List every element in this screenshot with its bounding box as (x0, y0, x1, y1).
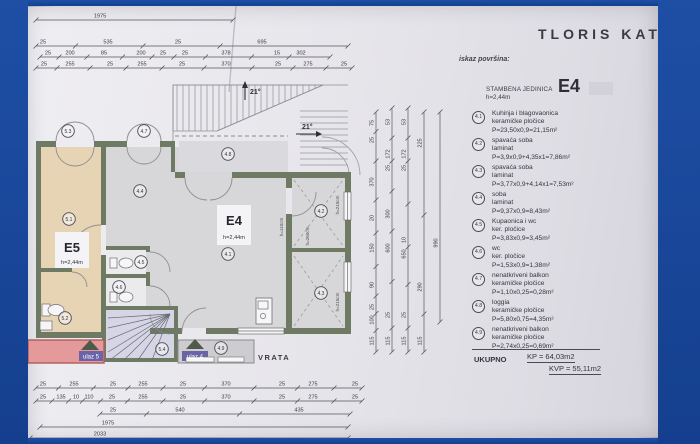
toilet-icon (119, 292, 133, 302)
dim-label: 300 (386, 209, 392, 218)
room-marker-label: 4.5 (138, 260, 145, 266)
dim-label: 25 (110, 408, 116, 414)
photo-frame-left (0, 0, 28, 444)
legend-item-text: spavaća sobalaminatP=3,77x0,9+4,14x1=7,5… (492, 164, 574, 189)
dim-label: 25 (352, 395, 358, 401)
room-code-circle: 4.7 (472, 273, 485, 286)
dim-label: 302 (296, 51, 305, 57)
dim-label: 650 (402, 249, 408, 258)
dim-label: 115 (402, 337, 408, 346)
dim-label: 275 (308, 395, 317, 401)
dim-label: 172 (386, 149, 392, 158)
room-marker-label: 5.3 (65, 129, 72, 135)
entrance-label-ulaz5: ulaz 5 (83, 355, 100, 361)
legend-unit-label: STAMBENA JEDINICA (486, 86, 553, 93)
ceiling-height-label: h=215cm (335, 195, 340, 214)
dim-label: 10 (402, 237, 408, 243)
dim-label: 85 (101, 51, 107, 57)
dim-label: 370 (221, 62, 230, 68)
dim-label: 435 (294, 408, 303, 414)
dim-label: 25 (182, 51, 188, 57)
dim-label: 200 (136, 51, 145, 57)
legend-item-text: wcker. pločiceP=1,53x0,9=1,38m² (492, 245, 550, 270)
room-marker-label: 4.2 (318, 209, 325, 215)
totals-kvp-value: KVP = 55,11m2 (549, 364, 601, 375)
legend-heading: iskaz površina: (459, 56, 510, 63)
dim-label: 695 (257, 40, 266, 46)
ceiling-height-label: h=110cm (279, 217, 284, 236)
room-marker-label: 5.1 (66, 217, 73, 223)
ceiling-height-label: h=260cm (305, 226, 310, 245)
dim-label: 10 (73, 395, 79, 401)
dim-label: 25 (40, 395, 46, 401)
dim-label: 25 (370, 137, 376, 143)
dim-label: 25 (279, 395, 285, 401)
dim-label: 25 (180, 382, 186, 388)
dim-label: 378 (221, 51, 230, 57)
legend-item-text: loggiakeramičke pločiceP=5,80x0,75=4,35m… (492, 299, 554, 324)
room-code-circle: 4.4 (472, 192, 485, 205)
page-title: TLORIS KATA (538, 26, 674, 42)
unit-e5-height: h=2,44m (61, 260, 83, 266)
dim-label: 25 (402, 165, 408, 171)
room-code-circle: 4.3 (472, 165, 485, 178)
dim-label: 25 (40, 382, 46, 388)
room-marker-label: 4.1 (225, 252, 232, 258)
unit-e4-height: h=2,44m (223, 235, 245, 241)
room-code-circle: 4.1 (472, 111, 485, 124)
legend-unit-swatch (589, 82, 613, 95)
room-marker-label: 4.7 (141, 129, 148, 135)
totals-divider (472, 349, 600, 350)
dim-label: 25 (402, 312, 408, 318)
room-marker-label: 4.6 (116, 285, 123, 291)
dim-label: 25 (40, 40, 46, 46)
photo-frame-right (658, 0, 700, 444)
dim-label: 135 (56, 395, 65, 401)
room-code-circle: 4.5 (472, 219, 485, 232)
dim-label: 25 (109, 395, 115, 401)
dim-label: 255 (69, 382, 78, 388)
totals-kp-value: KP = 64,03m2 (527, 352, 575, 363)
dim-label: 290 (418, 282, 424, 291)
legend-item-text: sobalaminatP=9,37x0,9=8,43m² (492, 191, 550, 216)
dim-label: 115 (386, 337, 392, 346)
roof-slope-angle-up: 21° (250, 88, 261, 96)
dim-label: 370 (221, 382, 230, 388)
dim-label: 255 (138, 382, 147, 388)
dim-label: 600 (386, 243, 392, 252)
dim-label: 90 (370, 282, 376, 288)
legend-unit-code: E4 (558, 76, 580, 97)
dim-label: 75 (370, 120, 376, 126)
roof-slope-angle-right: 21° (302, 123, 313, 131)
legend-items-list: 4.1Kuhinja i blagovaonicakeramičke ploči… (472, 110, 657, 350)
dim-label: 115 (370, 337, 376, 346)
dim-label: 275 (308, 382, 317, 388)
dim-label: 540 (175, 408, 184, 414)
dim-label: 172 (402, 149, 408, 158)
legend-item-text: Kuhinja i blagovaonicakeramičke pločiceP… (492, 110, 558, 135)
dim-label: 370 (221, 395, 230, 401)
dim-label: 25 (352, 382, 358, 388)
dim-label: 53 (402, 119, 408, 125)
room-marker-label: 4.3 (318, 291, 325, 297)
dim-label: 25 (180, 395, 186, 401)
dim-label: 25 (275, 62, 281, 68)
room-marker-label: 4.9 (218, 346, 225, 352)
dim-label: 25 (341, 62, 347, 68)
legend-item-text: spavaća sobalaminatP=3,9x0,9+4,35x1=7,86… (492, 137, 570, 162)
room-marker-label: 5.2 (62, 316, 69, 322)
room-marker-label: 4.4 (137, 189, 144, 195)
dim-label: 255 (138, 395, 147, 401)
dim-label: 25 (179, 62, 185, 68)
dim-label: 25 (45, 51, 51, 57)
room-code-circle: 4.2 (472, 138, 485, 151)
dim-label: 25 (160, 51, 166, 57)
legend-item-text: nenatkriveni balkonkeramičke pločiceP=1,… (492, 272, 554, 297)
room-marker-label: 5.4 (159, 347, 166, 353)
dim-label: 1975 (102, 421, 114, 427)
dim-label: 200 (65, 51, 74, 57)
toilet-icon (119, 258, 133, 268)
dim-label: 990 (434, 238, 440, 247)
dim-label: 25 (41, 62, 47, 68)
dim-label: 25 (386, 165, 392, 171)
legend-unit-height: h=2,44m (486, 94, 510, 101)
unit-e4-label: E4 (226, 213, 243, 228)
paper-fold-crease (229, 6, 236, 92)
dim-label: 535 (103, 40, 112, 46)
room-code-circle: 4.6 (472, 246, 485, 259)
dim-label: 275 (303, 62, 312, 68)
dim-label: 115 (418, 337, 424, 346)
dim-label: 25 (175, 40, 181, 46)
entrance-label-ulaz4: ulaz 4 (187, 355, 204, 361)
legend-item-text: Kupaonica i wcker. pločiceP=3,83x0,9=3,4… (492, 218, 550, 243)
dim-label: 20 (370, 215, 376, 221)
dim-label: 255 (65, 62, 74, 68)
ceiling-height-label: h=215cm (335, 292, 340, 311)
room-code-circle: 4.8 (472, 300, 485, 313)
room-code-circle: 4.9 (472, 327, 485, 340)
dim-label: 255 (137, 62, 146, 68)
dim-label: 370 (370, 177, 376, 186)
vrata-label: VRATA (258, 353, 290, 362)
dim-label: 53 (386, 119, 392, 125)
dim-label: 25 (279, 382, 285, 388)
totals-label: UKUPNO (474, 355, 507, 364)
dim-label: 225 (418, 138, 424, 147)
dim-label: 110 (85, 395, 94, 401)
unit-e5-label: E5 (64, 240, 80, 255)
dim-label: 2033 (94, 432, 106, 438)
dim-label: 25 (386, 312, 392, 318)
photo-frame-bottom (0, 438, 700, 444)
legend-item-text: nenatkriveni balkonkeramičke pločiceP=2,… (492, 326, 554, 351)
sink-icon (40, 321, 52, 330)
photo-frame-top (0, 0, 700, 6)
room-marker-label: 4.8 (225, 152, 232, 158)
dim-label: 25 (370, 304, 376, 310)
dim-label: 25 (107, 62, 113, 68)
dim-label: 15 (274, 51, 280, 57)
dim-label: 100 (370, 315, 376, 324)
dim-label: 25 (110, 382, 116, 388)
dim-label: 150 (370, 243, 376, 252)
kitchen-fixtures (256, 298, 272, 324)
dim-label: 1975 (94, 14, 106, 20)
